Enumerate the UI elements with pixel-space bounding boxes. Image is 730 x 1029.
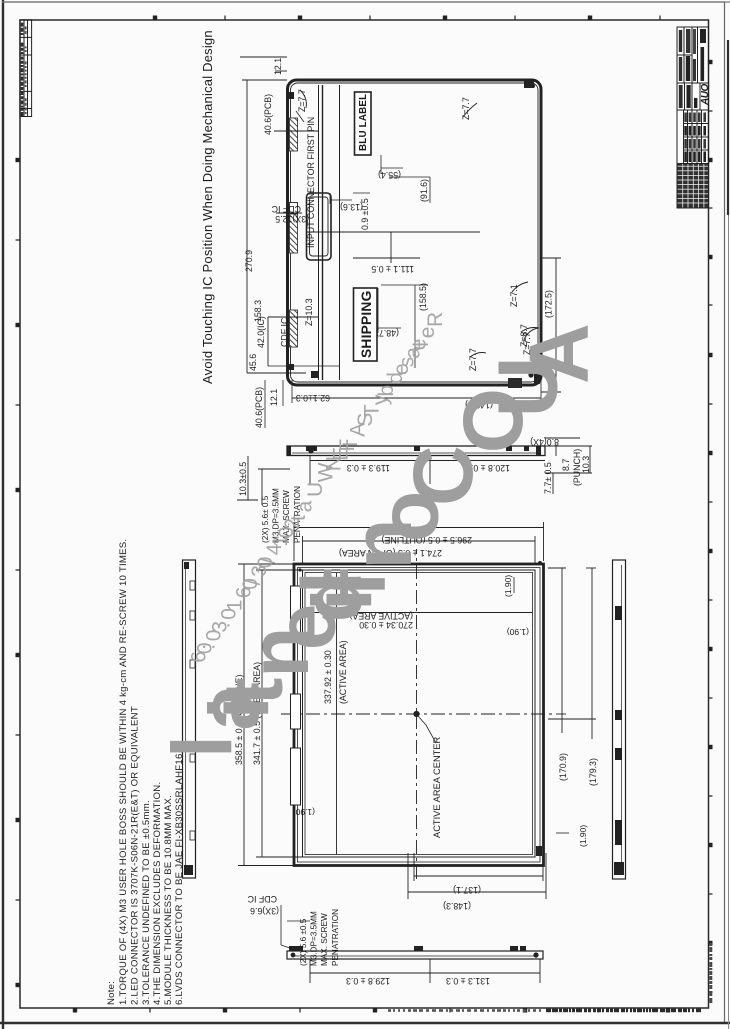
svg-text:(1.90): (1.90)	[293, 807, 315, 817]
svg-text:e: e	[416, 327, 439, 339]
svg-text:Z=7.1: Z=7.1	[509, 284, 519, 307]
svg-text:4.THE DIMENSION EXCLUDES DEFOR: 4.THE DIMENSION EXCLUDES DEFORMATION.	[152, 782, 163, 1005]
svg-text:U: U	[304, 482, 327, 497]
svg-text:4: 4	[263, 543, 286, 555]
svg-text:2.LED CONNECTOR IS 3707K-S06N-: 2.LED CONNECTOR IS 3707K-S06N-21R(E&T) O…	[130, 706, 141, 1005]
svg-text:INPUT CONNECTOR FIRST PIN: INPUT CONNECTOR FIRST PIN	[306, 117, 316, 248]
svg-text:10.3±0.5: 10.3±0.5	[238, 462, 248, 496]
svg-text:5.MODULE THICKNESS TO BE 10.8M: 5.MODULE THICKNESS TO BE 10.8MM MAX.	[163, 795, 174, 1005]
svg-text:(1.90): (1.90)	[503, 575, 513, 597]
svg-text:40.6(PCB): 40.6(PCB)	[263, 94, 273, 135]
svg-text:10.3: 10.3	[581, 456, 591, 473]
svg-text:(148.3): (148.3)	[443, 901, 471, 911]
svg-text:AUO: AUO	[700, 84, 711, 106]
svg-text:129.8 ± 0.3: 129.8 ± 0.3	[346, 976, 390, 986]
svg-text:(137.1): (137.1)	[453, 885, 481, 895]
svg-text:(3X)6.6: (3X)6.6	[250, 906, 279, 916]
svg-text:3.TOLERANCE UNDEFINED TO BE ±0: 3.TOLERANCE UNDEFINED TO BE ±0.5mm.	[141, 800, 152, 1005]
svg-text:(3X)12.5: (3X)12.5	[275, 214, 309, 224]
svg-text:(1.90): (1.90)	[578, 825, 588, 847]
svg-text:n: n	[232, 627, 326, 678]
svg-text:1.TORQUE OF (4X) M3 USER HOLE: 1.TORQUE OF (4X) M3 USER HOLE BOSS SHOUL…	[118, 539, 129, 1005]
svg-text:3: 3	[248, 565, 271, 577]
svg-text:Z=10.3: Z=10.3	[304, 298, 314, 326]
svg-text:(55.4): (55.4)	[378, 170, 401, 180]
svg-text:Z=7.7: Z=7.7	[461, 97, 471, 120]
svg-text:0: 0	[218, 608, 241, 620]
svg-text:Avoid Touching IC Position Whe: Avoid Touching IC Position When Doing Me…	[200, 30, 215, 384]
svg-text:a: a	[293, 500, 316, 512]
svg-text:O: O	[446, 388, 540, 453]
svg-text:(179.3): (179.3)	[588, 758, 598, 786]
svg-text:CDF IC: CDF IC	[271, 204, 301, 214]
svg-text:a: a	[182, 683, 276, 731]
svg-text:ACTIVE AREA CENTER: ACTIVE AREA CENTER	[432, 736, 442, 838]
svg-text:d: d	[384, 372, 407, 384]
svg-text:M3.DP=3.5MM: M3.DP=3.5MM	[310, 911, 319, 966]
svg-text:(170.9): (170.9)	[558, 753, 568, 781]
svg-text:CDF IC: CDF IC	[280, 317, 290, 347]
svg-text:W: W	[314, 462, 337, 482]
svg-text:y: y	[369, 394, 392, 405]
svg-text:111.1 ± 0.5: 111.1 ± 0.5	[371, 264, 414, 274]
svg-text:(48.7): (48.7)	[376, 328, 399, 338]
svg-text:SHIPPING: SHIPPING	[359, 290, 374, 358]
svg-text:BLU LABEL: BLU LABEL	[358, 94, 369, 151]
svg-text:R: R	[424, 312, 447, 327]
svg-text:(13.6): (13.6)	[340, 202, 363, 212]
svg-text:6: 6	[187, 651, 210, 663]
svg-text:12.1: 12.1	[273, 58, 283, 75]
svg-text:Note:: Note:	[106, 981, 117, 1005]
svg-text:40.6(PCB): 40.6(PCB)	[254, 387, 264, 428]
svg-text:PENATRATION: PENATRATION	[331, 909, 340, 966]
svg-text:(2X) 5.6 ±0.5: (2X) 5.6 ±0.5	[299, 918, 308, 966]
svg-text:131.3 ± 0.3: 131.3 ± 0.3	[446, 976, 490, 986]
svg-text:6: 6	[233, 587, 256, 599]
svg-text:(1.90): (1.90)	[507, 627, 529, 637]
svg-text:CDF IC: CDF IC	[247, 894, 277, 904]
svg-text:(158.5): (158.5)	[418, 283, 428, 311]
svg-text:MAX. SCREW: MAX. SCREW	[320, 913, 329, 966]
svg-text:l: l	[156, 735, 250, 758]
svg-text:7.7± 0.5: 7.7± 0.5	[543, 462, 553, 494]
svg-text:8.7: 8.7	[561, 459, 571, 471]
svg-text:(172.5): (172.5)	[544, 290, 554, 318]
svg-text:270.9: 270.9	[244, 250, 254, 272]
svg-text:119.3 ± 0.3: 119.3 ± 0.3	[347, 463, 390, 473]
svg-text:12.1: 12.1	[269, 389, 279, 406]
svg-text:Z=7.7: Z=7.7	[468, 348, 478, 371]
svg-text:45.6: 45.6	[248, 354, 258, 371]
svg-text:(91.6): (91.6)	[419, 179, 429, 202]
svg-text:0: 0	[202, 630, 225, 642]
svg-text:n: n	[335, 518, 429, 569]
svg-text:42.0(IC): 42.0(IC)	[256, 316, 266, 348]
svg-text:A: A	[347, 423, 370, 437]
